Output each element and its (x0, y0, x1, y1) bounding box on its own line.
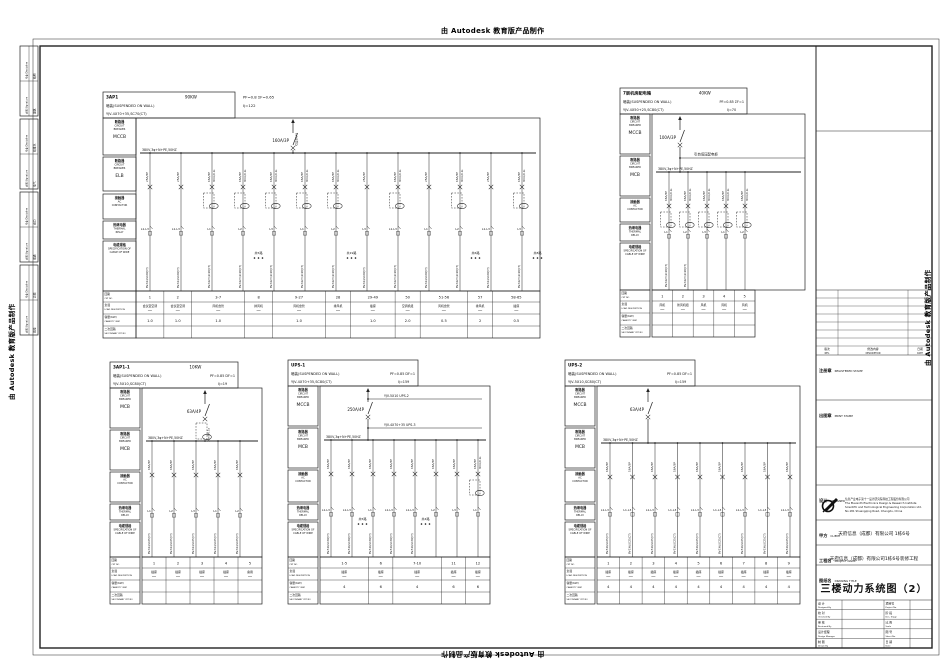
branch-phase-label: L1-L3 (322, 508, 330, 512)
capacity-kw: 1.0 (215, 319, 221, 323)
capacity-kw: 1.0 (370, 319, 376, 323)
ckt-number: 57 (478, 296, 483, 300)
side-row-label-en: CABLE OF WIRE (293, 531, 313, 535)
group-dots (541, 257, 543, 259)
load-description: 风机 (721, 302, 727, 307)
branch-rcd-label: 30mA/0.1s (244, 169, 247, 182)
grid-label-en: Designed By (818, 607, 832, 609)
load-description: 插座 (151, 569, 157, 574)
side-row-label-zh: 接触器 (119, 473, 130, 478)
side-row-label-en: CONTACTOR (627, 207, 643, 211)
thermal-tick (460, 226, 463, 229)
table-row-label-en: CKT NO (622, 297, 630, 299)
group-dots (537, 257, 539, 259)
branch-breaker-label: 16A/3P (191, 460, 195, 470)
load-description: 插座 (175, 569, 181, 574)
ckt-number: 51-56 (439, 296, 450, 300)
table-row-label-zh: 容量(KW) (622, 314, 634, 318)
branch-cable-label: BV-5X6,SC30(CT) (411, 533, 414, 554)
branch-phase-label: L3 (517, 227, 521, 231)
side-row-label-en: CABLE OF WIRE (110, 250, 130, 254)
side-row-device: MCCB (629, 130, 642, 136)
bus-label: 380V,3φ+N+PE,50HZ (142, 148, 178, 152)
side-row-label-en: AC (578, 476, 582, 480)
side-row-label-zh: 热继电器 (629, 225, 643, 230)
group-dots (479, 257, 481, 259)
table-row-label-en: CKT NO (112, 564, 120, 566)
junction-dot (351, 439, 353, 441)
branch-breaker-label: 16A/3P (452, 459, 456, 469)
bus-label: 380V,3φ+N+PE,50HZ (658, 167, 694, 171)
autodesk-watermark-right: 由 Autodesk 教育版产品制作 (922, 270, 932, 366)
side-row-label-en: SPECIFICATION OF (292, 528, 315, 532)
side-row-label-en: CIRCUIT (115, 124, 125, 128)
branch-breaker-label: 16A/3P (673, 462, 677, 472)
branch-breaker-label: 16A/3P (517, 172, 521, 182)
branch-phase-label: L1 (664, 230, 668, 234)
side-row-label-en: THERMAL (629, 230, 642, 234)
registered-stamp-section: 注册章REGISTERED STAMP (819, 357, 863, 376)
side-row-label-zh: 电缆规格 (297, 523, 311, 528)
load-description: 插座 (475, 569, 481, 574)
side-row-label-en: BREAKER (119, 439, 131, 443)
junction-dot (521, 152, 523, 154)
drawing-sheet: 会签 Signature专业 Discipline建筑结构会签 Signatur… (0, 0, 950, 672)
junction-dot (367, 427, 369, 429)
main-breaker-label: 63A/4P (187, 409, 202, 414)
sign-strip-discipline-item: 结构 (33, 73, 37, 79)
side-row-device: MCCB (113, 134, 126, 140)
side-row-label-en: RELAY (116, 230, 124, 234)
thermal-tick (398, 226, 401, 229)
junction-dot (456, 439, 458, 441)
branch-breaker-label: 16A/3P (664, 191, 668, 201)
designer-company-lines: 信息产业电子第十一设计研究院科技工程股份有限公司 The Eleventh El… (845, 497, 922, 513)
table-row-label-zh: 二次回路 (567, 593, 578, 597)
side-row-label-en: CIRCUIT (630, 120, 640, 124)
side-row-device: MCB (120, 404, 130, 410)
branch-breaker-label: 16A/3P (213, 460, 217, 470)
drawing-title-value: 三楼动力系统图（2） (818, 580, 930, 595)
side-row-label-en: AC (633, 204, 637, 208)
junction-dot (330, 439, 332, 441)
branch-breaker-label: 16A/3P (650, 462, 654, 472)
side-row-label-zh: 断路器 (120, 431, 130, 436)
panel-ij: Ij=159 (675, 380, 686, 384)
load-description: 插座 (786, 569, 792, 574)
junction-dot (477, 439, 479, 441)
side-row-label-en: SPECIFICATION OF (569, 528, 592, 532)
load-description: 插座 (199, 569, 205, 574)
thermal-tick (678, 507, 681, 510)
branch-phase-label: L2 (431, 508, 435, 512)
grid-label-zh: 校 对 (818, 610, 825, 615)
print-stamp-label-zh: 出图章 (819, 413, 832, 418)
junction-dot (687, 171, 689, 173)
side-row-label-en: BREAKER (629, 165, 641, 169)
side-row-label-zh: 断路器 (575, 429, 585, 434)
branch-cable-label: BV-3X4,SC20(CT) (146, 267, 149, 288)
branch-rcd-label: 30mA/0.1s (670, 188, 673, 201)
load-description: 风机 (659, 302, 665, 307)
grid-label-en: Sheet No. (886, 635, 896, 638)
thermal-tick (522, 226, 525, 229)
junction-dot (367, 439, 369, 441)
ckt-number: 6 (720, 562, 723, 566)
branch-cable-label: BV-3X2.5,SC20(CT) (684, 264, 687, 287)
branch-rcd-label: 30mA/0.1s (461, 169, 464, 182)
branch-cable-label: BV-5X6,SC30(CT) (390, 533, 393, 554)
ckt-number: 6 (380, 562, 383, 566)
capacity-kw: 4 (607, 585, 610, 589)
cad-linework-layer: 会签 Signature专业 Discipline建筑结构会签 Signatur… (0, 0, 950, 672)
tap-label: YJV-5X10 UPS-2 (384, 394, 409, 398)
incoming-arrow (678, 116, 682, 120)
table-row-label-zh: 容量(KW) (567, 581, 579, 585)
branch-cable-label: BV-3X4,SC20(CT) (177, 267, 180, 288)
junction-dot (149, 152, 151, 154)
sign-strip-signature-label: 会签 Signature (25, 96, 29, 114)
branch-phase-label: L3 (452, 508, 456, 512)
side-row-device: MCCB (574, 402, 587, 408)
side-row-label-en: SPECIFICATION OF (624, 249, 647, 253)
grid-label-zh: 项目号 (886, 600, 895, 605)
side-row-label-zh: 断路器 (630, 115, 640, 120)
load-description: 插座 (741, 569, 747, 574)
table-row-label-en: LOAD DESCRIPTION (112, 574, 133, 577)
thermal-tick (688, 229, 691, 232)
side-row-label-en: BREAKER (297, 437, 309, 441)
side-row-label-en: CIRCUIT (575, 434, 585, 438)
junction-dot (668, 171, 670, 173)
branch-phase-label: L1-L3 (736, 508, 744, 512)
branch-rcd-label: 30mA/0.1s (708, 188, 711, 201)
branch-cable-label: BV-3X2.5,SC20(CT) (394, 265, 397, 288)
branch-phase-label: L2 (455, 227, 459, 231)
branch-phase-label: L1-L3 (141, 227, 149, 231)
junction-dot (292, 152, 294, 154)
main-breaker-label: 100A/3P (659, 135, 676, 140)
branch-phase-label: L1-L3 (623, 508, 631, 512)
panel-pf: PF=0.85 ΣF=1 (719, 100, 744, 104)
sign-strip-discipline-item: 电气 (33, 181, 37, 187)
ckt-number: 3 (201, 562, 203, 566)
side-row-label-en: RELAY (631, 233, 639, 237)
branch-cable-label: BV-3X4,SC25(CT) (170, 533, 173, 554)
branch-phase-label: L1-L3 (172, 227, 180, 231)
load-description: 插座 (605, 569, 611, 574)
branch-rcd-label: 30mA/0.1s (399, 169, 402, 182)
panel-pf: PF=0.85 DF=1 (210, 374, 235, 378)
rev-header-rev: 版次 (824, 347, 830, 351)
branch-breaker-label: 16A/3P (455, 172, 459, 182)
junction-dot (609, 442, 611, 444)
branch-phase-label: L1-L3 (482, 227, 490, 231)
junction-dot (744, 442, 746, 444)
branch-rcd-label: 30mA/0.1s (306, 169, 309, 182)
junction-dot (195, 440, 197, 442)
branch-contactor-box (390, 193, 401, 208)
side-row-label-en: CONTACTOR (117, 481, 133, 485)
branch-phase-label: L2 (331, 227, 335, 231)
table-row-label-zh: 容量(KW) (290, 581, 302, 585)
branch-phase-label: L3 (269, 227, 273, 231)
ckt-number: 9-27 (295, 296, 303, 300)
ckt-number: 1 (149, 296, 151, 300)
rev-header-desc-en: DESCRIPTION (866, 352, 881, 355)
table-row-label-en: CAPACITY (KW) (622, 319, 638, 322)
panel-power: 90KW (185, 95, 197, 100)
branch-cable-label: BV-5X6,SC25(CT) (741, 533, 744, 554)
thermal-tick (491, 226, 494, 229)
registered-stamp-label-en: REGISTERED STAMP (835, 369, 863, 373)
branch-cable-label: BV-3X2.5,SC20(CT) (208, 265, 211, 288)
side-row-label-zh: 断路器 (298, 387, 308, 392)
branch-contactor-box (737, 212, 748, 227)
branch-breaker-label: 16A/3P (368, 459, 372, 469)
autodesk-watermark-top: 由 Autodesk 教育版产品制作 (441, 26, 544, 36)
branch-phase-label: L1 (721, 230, 725, 234)
table-row-label-zh: 负载 (112, 569, 118, 573)
junction-dot (372, 439, 374, 441)
ckt-number: 2 (682, 295, 684, 299)
junction-dot (242, 152, 244, 154)
ckt-number: 4 (675, 562, 678, 566)
junction-dot (725, 171, 727, 173)
junction-dot (180, 152, 182, 154)
ckt-number: 7 (742, 562, 744, 566)
branch-breaker-label: 25A/3P (145, 172, 149, 182)
load-description: 插座 (370, 303, 376, 308)
group-dots (258, 257, 260, 259)
branch-phase-label: L1-L3 (781, 508, 789, 512)
sign-strip-discipline-item: 暖通 (33, 254, 37, 260)
load-description: 插座 (223, 569, 229, 574)
branch-contactor-box (235, 193, 246, 208)
branch-phase-label: L2 (235, 509, 239, 513)
table-row-label-en: CKT NO (105, 298, 113, 300)
group-dots (254, 257, 256, 259)
thermal-tick (415, 507, 418, 510)
group-dots (358, 523, 360, 525)
side-row-label-en: AC (123, 478, 127, 482)
branch-cable-label: BV-3X4,SC25(CT) (192, 533, 195, 554)
junction-dot (706, 171, 708, 173)
thermal-tick (243, 226, 246, 229)
branch-cable-label: BV-5X6,SC25(CT) (629, 533, 632, 554)
load-description: 会议室空调 (171, 303, 186, 308)
branch-group-label: 共5路 (359, 516, 367, 521)
sign-strip-signature-label: 会签 Signature (25, 242, 29, 260)
junction-dot (722, 442, 724, 444)
sign-strip-discipline-label: 专业 Discipline (25, 134, 29, 152)
rev-header-rev-en: REV. (825, 352, 830, 355)
branch-phase-label: L1-L3 (691, 508, 699, 512)
main-contactor-box (196, 423, 207, 439)
branch-cable-label: BV-3X2.5,SC20(CT) (518, 265, 521, 288)
branch-breaker-label: 16A/3P (718, 462, 722, 472)
sign-strip-signature-label: 会签 Signature (25, 315, 29, 333)
branch-phase-label: L1 (213, 509, 217, 513)
side-row-label-zh: 电缆规格 (574, 523, 588, 528)
main-breaker-label: 250A/4P (347, 407, 364, 412)
thermal-tick (790, 507, 793, 510)
ckt-number: 2 (177, 562, 179, 566)
side-row-label-en: BREAKER (574, 437, 586, 441)
ckt-number: 3 (652, 562, 654, 566)
table-row-label-en: SECONDARY CKT NO (567, 598, 589, 601)
branch-contactor-box (718, 212, 729, 227)
table-row-label-zh: 回路 (290, 558, 296, 562)
capacity-kw: 1.0 (175, 319, 181, 323)
side-row-label-zh: 热继电器 (119, 505, 133, 510)
junction-dot (414, 439, 416, 441)
ckt-number: 4 (225, 562, 228, 566)
side-row-label-en: RELAY (121, 513, 129, 517)
table-row-label-en: SECONDARY CKT NO (112, 598, 134, 601)
side-row-label-en: THERMAL (114, 227, 127, 231)
branch-breaker-label: 16A/3P (347, 459, 351, 469)
junction-dot (789, 442, 791, 444)
ckt-number: 7-10 (413, 562, 422, 566)
rev-header-desc: 修改内容 (867, 347, 878, 351)
branch-phase-label: L2 (683, 230, 687, 234)
branch-breaker-label: 16A/3P (410, 459, 414, 469)
branch-phase-label: L1-L3 (646, 508, 654, 512)
branch-breaker-label: 16A/3P (740, 462, 744, 472)
panel-pf: PF=0.8 ΣF=0.65 (243, 95, 275, 100)
side-row-label-en: RELAY (576, 513, 584, 517)
load-description: 排风机 (476, 303, 485, 308)
side-row-device: ELB (115, 173, 123, 179)
load-description: 风机盘管 (293, 303, 305, 308)
branch-contactor-box (470, 480, 481, 495)
side-row-label-zh: 电缆规格 (113, 242, 127, 247)
group-dots (421, 523, 423, 525)
sign-strip-discipline-label: 专业 Discipline (25, 280, 29, 298)
capacity-kw: 2.0 (405, 319, 411, 323)
branch-contactor-box (680, 212, 691, 227)
table-row-label-zh: 容量(KW) (112, 581, 124, 585)
thermal-tick (352, 507, 355, 510)
diagram-box (142, 388, 262, 557)
panel-name: 3AP1-1 (113, 365, 130, 370)
junction-dot (632, 442, 634, 444)
branch-phase-label: L1-L3 (713, 508, 721, 512)
load-description: 排风机 (334, 303, 343, 308)
side-row-label-en: CABLE OF WIRE (570, 531, 590, 535)
junction-dot (204, 440, 206, 442)
branch-group-label: 共19路 (347, 250, 357, 255)
junction-dot (151, 440, 153, 442)
panel-ij: Ij=70 (727, 108, 736, 112)
table-row-label-zh: 回路 (112, 558, 118, 562)
side-row-label-en: THERMAL (119, 510, 132, 514)
junction-dot (647, 442, 649, 444)
branch-cable-label: BV-3X4,SC25(CT) (214, 533, 217, 554)
panel-mounting: 暗装(SUSPENDED ON WALL) (623, 99, 672, 104)
capacity-kw: 4 (697, 585, 700, 589)
ckt-number: 1-5 (341, 562, 347, 566)
thermal-tick (336, 226, 339, 229)
thermal-tick (669, 229, 672, 232)
side-row-label-en: CIRCUIT (298, 392, 308, 396)
grid-label-zh: 图 号 (886, 629, 893, 634)
grid-label-zh: 设计经理 (818, 629, 830, 634)
junction-dot (273, 152, 275, 154)
side-row-device: MCB (575, 444, 585, 450)
junction-dot (366, 152, 368, 154)
junction-dot (677, 442, 679, 444)
thermal-tick (436, 507, 439, 510)
side-row-label-en: CABLE OF WIRE (625, 252, 645, 256)
incoming-arrow (646, 388, 650, 392)
side-row-label-en: SPECIFICATION OF (114, 528, 137, 532)
bus-label: 380V,3φ+N+PE,50HZ (148, 436, 184, 440)
diagram-box (320, 386, 490, 557)
load-description: 插座 (673, 569, 679, 574)
group-dots (475, 257, 477, 259)
table-row-label-zh: 负载 (567, 569, 573, 573)
side-row-label-zh: 电缆规格 (119, 523, 133, 528)
capacity-kw: 6 (380, 585, 383, 589)
ckt-number: 28 (336, 296, 341, 300)
design-institute-logo (820, 494, 840, 514)
load-description: 插座 (451, 569, 457, 574)
table-row-label-zh: 容量(KW) (105, 315, 117, 319)
side-row-label-zh: 热继电器 (297, 505, 311, 510)
main-breaker-blade (368, 402, 373, 414)
table-row-label-en: LOAD DESCRIPTION (290, 574, 311, 577)
side-row-label-en: CIRCUIT (630, 162, 640, 166)
grid-label-zh: 阶 段 (886, 610, 893, 615)
branch-phase-label: L2 (169, 509, 173, 513)
grid-label-zh: 制 图 (818, 639, 825, 644)
side-row-label-en: CABLE OF WIRE (115, 531, 135, 535)
thermal-tick (181, 226, 184, 229)
side-row-label-en: THERMAL (574, 510, 587, 514)
branch-phase-label: L1-L3 (406, 508, 414, 512)
branch-phase-label: L2 (238, 227, 242, 231)
table-row-label-en: CKT NO (290, 564, 298, 566)
branch-cable-label: BV-3X4,SC25(CT) (148, 533, 151, 554)
branch-breaker-label: 16A/3P (785, 462, 789, 472)
side-row-label-en: RELAY (299, 513, 307, 517)
group-dots (366, 523, 368, 525)
junction-dot (699, 442, 701, 444)
incoming-arrow (366, 388, 370, 392)
panel-mounting: 暗装(SUSPENDED ON WALL) (106, 103, 155, 108)
grid-label-en: Date (886, 644, 892, 647)
branch-cable-label: BV-3X4,SC20(CT) (363, 267, 366, 288)
table-row-label-en: CAPACITY (KW) (105, 320, 121, 323)
ckt-number: 2 (630, 562, 632, 566)
junction-dot (217, 440, 219, 442)
ckt-number: 8 (765, 562, 768, 566)
branch-rcd-label: 30mA/0.1s (523, 169, 526, 182)
branch-group-label: 共4路 (422, 516, 430, 521)
thermal-tick (367, 226, 370, 229)
junction-dot (304, 152, 306, 154)
main-breaker-label: 63A/4P (630, 407, 645, 412)
diagram-box (652, 114, 805, 290)
table-row-label-en: LOAD DESCRIPTION (567, 574, 588, 577)
thermal-tick (745, 507, 748, 510)
ckt-number: 1 (607, 562, 609, 566)
branch-phase-label: L1-L3 (343, 508, 351, 512)
branch-breaker-label: 16A/3P (431, 459, 435, 469)
branch-breaker-label: 16A/3P (740, 191, 744, 201)
